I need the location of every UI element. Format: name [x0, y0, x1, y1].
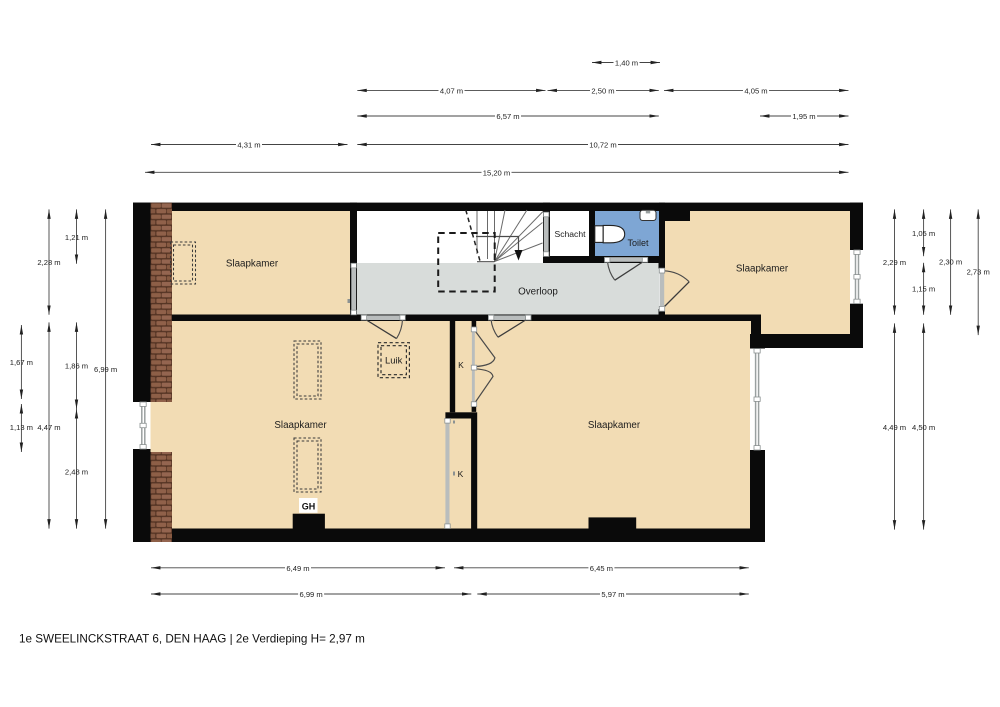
svg-text:Slaapkamer: Slaapkamer	[274, 420, 327, 431]
svg-text:1,95 m: 1,95 m	[792, 112, 815, 121]
svg-text:2,50 m: 2,50 m	[591, 86, 614, 95]
svg-text:2,30 m: 2,30 m	[939, 258, 962, 267]
svg-text:1e SWEELINCKSTRAAT 6, DEN HAAG: 1e SWEELINCKSTRAAT 6, DEN HAAG | 2e Verd…	[19, 633, 365, 646]
svg-text:6,49 m: 6,49 m	[286, 564, 309, 573]
svg-text:4,49 m: 4,49 m	[883, 423, 906, 432]
svg-text:6,57 m: 6,57 m	[496, 112, 519, 121]
svg-text:4,31 m: 4,31 m	[237, 141, 260, 150]
svg-text:1,86 m: 1,86 m	[65, 362, 88, 371]
svg-text:Slaapkamer: Slaapkamer	[588, 420, 641, 431]
svg-text:K: K	[458, 360, 464, 370]
svg-text:GH: GH	[302, 501, 316, 511]
svg-text:Luik: Luik	[385, 355, 403, 366]
svg-text:1,15 m: 1,15 m	[912, 285, 935, 294]
svg-text:4,50 m: 4,50 m	[912, 423, 935, 432]
svg-text:Slaapkamer: Slaapkamer	[226, 258, 279, 269]
svg-text:1,05 m: 1,05 m	[912, 229, 935, 238]
svg-text:10,72 m: 10,72 m	[589, 141, 616, 150]
svg-text:15,20 m: 15,20 m	[483, 168, 510, 177]
svg-text:1,13 m: 1,13 m	[10, 423, 33, 432]
svg-text:2,28 m: 2,28 m	[37, 258, 60, 267]
svg-text:1,40 m: 1,40 m	[615, 59, 638, 68]
svg-text:6,99 m: 6,99 m	[94, 365, 117, 374]
svg-text:4,47 m: 4,47 m	[37, 423, 60, 432]
svg-text:5,97 m: 5,97 m	[601, 590, 624, 599]
svg-text:1,21 m: 1,21 m	[65, 233, 88, 242]
svg-text:2,73 m: 2,73 m	[967, 268, 990, 277]
svg-text:Overloop: Overloop	[518, 286, 558, 297]
svg-text:K: K	[458, 469, 464, 479]
svg-text:2,29 m: 2,29 m	[883, 258, 906, 267]
svg-text:1,67 m: 1,67 m	[10, 358, 33, 367]
svg-text:Toilet: Toilet	[627, 238, 649, 248]
svg-text:4,07 m: 4,07 m	[440, 86, 463, 95]
svg-text:Schacht: Schacht	[554, 229, 586, 239]
svg-text:2,48 m: 2,48 m	[65, 468, 88, 477]
svg-text:4,05 m: 4,05 m	[744, 86, 767, 95]
svg-text:6,45 m: 6,45 m	[590, 564, 613, 573]
svg-text:6,99 m: 6,99 m	[299, 590, 322, 599]
svg-text:Slaapkamer: Slaapkamer	[736, 263, 789, 274]
